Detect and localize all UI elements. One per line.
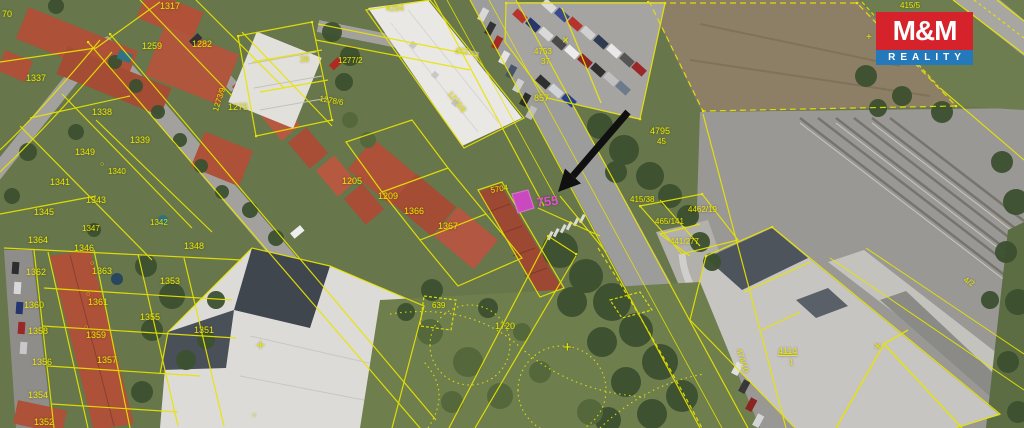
cadastral-map: 70131713371259133812821273/91275281277/2…: [0, 0, 1024, 428]
map-base: [0, 0, 1024, 428]
logo-wordmark: M&M: [876, 12, 973, 50]
mm-reality-logo: M&M REALITY: [876, 12, 973, 65]
logo-subtitle: REALITY: [876, 50, 973, 65]
